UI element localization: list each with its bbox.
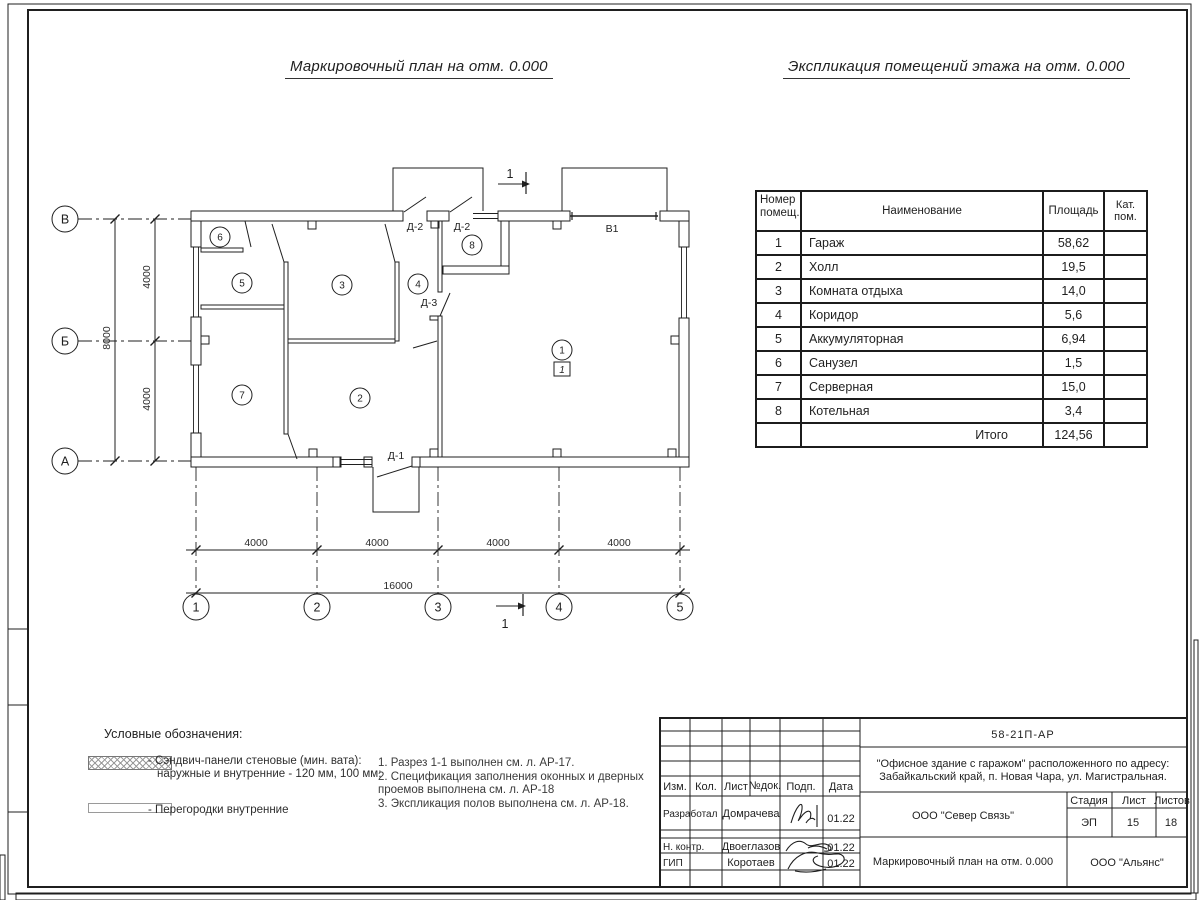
stamp-sheet-value: 15 xyxy=(1127,817,1139,829)
dimension-ticks xyxy=(111,215,685,598)
room-area: 15,0 xyxy=(1043,375,1104,399)
room-cat xyxy=(1104,279,1147,303)
room-num: 3 xyxy=(756,279,801,303)
dim-label: 4000 xyxy=(141,387,153,411)
dim-label: 4000 xyxy=(141,265,153,289)
room-name: Коридор xyxy=(801,303,1043,327)
stamp-drawing-title: Маркировочный план на отм. 0.000 xyxy=(873,856,1053,868)
svg-text:1: 1 xyxy=(507,167,514,181)
section-mark-top: 1 xyxy=(498,167,530,194)
svg-text:1: 1 xyxy=(559,365,565,376)
room-num: 5 xyxy=(756,327,801,351)
axis-number: 1 xyxy=(193,601,200,615)
dim-label: 4000 xyxy=(365,537,389,549)
door-label: Д-2 xyxy=(454,221,471,233)
room-number-circles xyxy=(210,227,572,408)
exterior-walls xyxy=(191,211,689,467)
room-cat xyxy=(1104,255,1147,279)
stamp-date: 01.22 xyxy=(827,813,855,825)
dimension-lines xyxy=(111,215,691,598)
stamp-sheets-label: Листов xyxy=(1154,795,1190,807)
axis-number: 2 xyxy=(314,601,321,615)
col-header-num: Номерпомещ. xyxy=(756,191,801,231)
stamp-col-ndok: №док. xyxy=(749,780,781,792)
stamp-company: ООО "Альянс" xyxy=(1090,857,1164,869)
room-number: 4 xyxy=(415,280,421,291)
interior-sandwich-wall xyxy=(443,266,509,274)
stamp-doc-number: 58-21П-АР xyxy=(991,729,1054,741)
stamp-col-podp: Подп. xyxy=(786,781,815,793)
note-line: 3. Экспликация полов выполнена см. л. АР… xyxy=(378,798,668,812)
side-stamp-cells xyxy=(8,629,28,812)
dim-label: 4000 xyxy=(607,537,631,549)
room-name: Серверная xyxy=(801,375,1043,399)
entrance-porch xyxy=(373,467,419,512)
total-area: 124,56 xyxy=(1043,423,1104,447)
room-num: 6 xyxy=(756,351,801,375)
stamp-stage-value: ЭП xyxy=(1081,817,1097,829)
legend-item-sandwich-panel: - Сэндвич-панели стеновые (мин. вата): н… xyxy=(148,755,381,781)
interior-sandwich-wall xyxy=(501,221,509,266)
room-area: 5,6 xyxy=(1043,303,1104,327)
gate-symbol xyxy=(570,212,658,220)
stamp-name: Домрачева xyxy=(723,808,781,820)
axis-number: 3 xyxy=(435,601,442,615)
canopy-outlines xyxy=(373,168,667,512)
room-cat xyxy=(1104,351,1147,375)
table-total-row: Итого 124,56 xyxy=(756,423,1147,447)
room-number: 2 xyxy=(357,394,363,405)
stamp-col-kol: Кол. xyxy=(695,781,717,793)
svg-text:1: 1 xyxy=(502,617,509,631)
col-header-area: Площадь xyxy=(1043,191,1104,231)
note-line: проемов выполнена см. л. АР-18 xyxy=(378,784,668,798)
legend-item-partition: - Перегородки внутренние xyxy=(148,804,289,817)
plan-title: Маркировочный план на отм. 0.000 xyxy=(285,58,553,79)
room-num: 1 xyxy=(756,231,801,255)
room-cat xyxy=(1104,327,1147,351)
axis-number: 4 xyxy=(556,601,563,615)
drawing-sheet: 4000 4000 4000 4000 16000 4000 4000 8000… xyxy=(0,0,1200,900)
axis-letter: А xyxy=(61,455,70,469)
room-num: 7 xyxy=(756,375,801,399)
room-number: 1 xyxy=(559,346,565,357)
room-cat xyxy=(1104,231,1147,255)
room-number: 5 xyxy=(239,279,245,290)
floor-type-marker: 1 xyxy=(554,362,570,376)
room-name: Гараж xyxy=(801,231,1043,255)
room-number: 8 xyxy=(469,241,475,252)
table-row: 2Холл19,5 xyxy=(756,255,1147,279)
dim-total-label: 8000 xyxy=(101,326,113,350)
table-row: 8Котельная3,4 xyxy=(756,399,1147,423)
section-mark-bottom: 1 xyxy=(496,594,526,631)
room-area: 14,0 xyxy=(1043,279,1104,303)
stamp-role: Н. контр. xyxy=(663,842,704,853)
stamp-role: ГИП xyxy=(663,858,683,869)
room-name: Котельная xyxy=(801,399,1043,423)
room-area: 58,62 xyxy=(1043,231,1104,255)
room-cat xyxy=(1104,375,1147,399)
room-cat xyxy=(1104,303,1147,327)
explication-table: Номерпомещ. Наименование Площадь Кат.пом… xyxy=(755,190,1148,448)
room-num: 2 xyxy=(756,255,801,279)
room-area: 19,5 xyxy=(1043,255,1104,279)
dim-total-label: 16000 xyxy=(383,580,412,592)
table-row: 1Гараж58,62 xyxy=(756,231,1147,255)
stamp-col-list: Лист xyxy=(724,781,748,793)
room-number: 3 xyxy=(339,281,345,292)
stamp-sheets-value: 18 xyxy=(1165,817,1177,829)
stamp-address-line2: Забайкальский край, п. Новая Чара, ул. М… xyxy=(879,771,1167,783)
room-name: Комната отдыха xyxy=(801,279,1043,303)
door-label: Д-1 xyxy=(388,450,405,462)
room-name: Санузел xyxy=(801,351,1043,375)
stamp-stage-label: Стадия xyxy=(1070,795,1108,807)
partitions xyxy=(201,221,442,457)
explication-title: Экспликация помещений этажа на отм. 0.00… xyxy=(783,58,1130,79)
axis-number: 5 xyxy=(677,601,684,615)
notes-block: 1. Разрез 1-1 выполнен см. л. АР-17. 2. … xyxy=(378,757,668,811)
stamp-name: Коротаев xyxy=(727,857,775,869)
stamp-role: Разработал xyxy=(663,808,718,820)
room-number: 7 xyxy=(239,391,245,402)
note-line: 1. Разрез 1-1 выполнен см. л. АР-17. xyxy=(378,757,668,771)
legend-title: Условные обозначения: xyxy=(104,727,243,741)
total-label: Итого xyxy=(801,423,1043,447)
table-row: 4Коридор5,6 xyxy=(756,303,1147,327)
explication-title-text: Экспликация помещений этажа на отм. 0.00… xyxy=(788,58,1125,75)
room-num: 4 xyxy=(756,303,801,327)
room-area: 6,94 xyxy=(1043,327,1104,351)
stamp-org: ООО "Север Связь" xyxy=(912,810,1014,822)
room-name: Холл xyxy=(801,255,1043,279)
dim-label: 4000 xyxy=(486,537,510,549)
stamp-name: Двоеглазов xyxy=(722,841,781,853)
room-area: 3,4 xyxy=(1043,399,1104,423)
col-header-name: Наименование xyxy=(801,191,1043,231)
stamp-address-line1: "Офисное здание с гаражом" расположенног… xyxy=(877,758,1170,770)
room-number: 6 xyxy=(217,233,223,244)
table-row: 5Аккумуляторная6,94 xyxy=(756,327,1147,351)
table-row: 7Серверная15,0 xyxy=(756,375,1147,399)
door-label: Д-2 xyxy=(407,221,424,233)
dim-label: 4000 xyxy=(244,537,268,549)
room-area: 1,5 xyxy=(1043,351,1104,375)
door-label: Д-3 xyxy=(421,297,438,309)
axis-letter: Б xyxy=(61,335,69,349)
col-header-cat: Кат.пом. xyxy=(1104,191,1147,231)
table-row: 6Санузел1,5 xyxy=(756,351,1147,375)
table-header-row: Номерпомещ. Наименование Площадь Кат.пом… xyxy=(756,191,1147,231)
room-cat xyxy=(1104,399,1147,423)
plan-title-text: Маркировочный план на отм. 0.000 xyxy=(290,58,548,75)
room-name: Аккумуляторная xyxy=(801,327,1043,351)
stamp-col-data: Дата xyxy=(829,781,854,793)
room-num: 8 xyxy=(756,399,801,423)
note-line: 2. Спецификация заполнения оконных и две… xyxy=(378,771,668,785)
stamp-sheet-label: Лист xyxy=(1122,795,1146,807)
table-row: 3Комната отдыха14,0 xyxy=(756,279,1147,303)
axis-letter: В xyxy=(61,213,69,227)
windows xyxy=(194,214,687,465)
column-markers xyxy=(201,221,679,467)
gate-label: В1 xyxy=(606,223,619,235)
